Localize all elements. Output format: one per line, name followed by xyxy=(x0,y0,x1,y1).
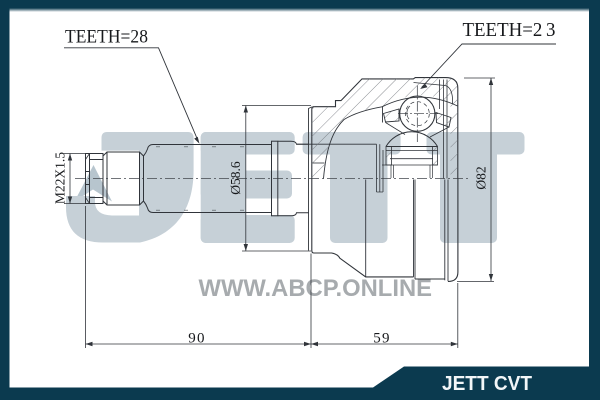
svg-text:TEETH=28: TEETH=28 xyxy=(65,28,148,48)
svg-text:WWW.ABCP.ONLINE: WWW.ABCP.ONLINE xyxy=(199,275,433,302)
svg-text:Ø58.6: Ø58.6 xyxy=(228,161,243,195)
svg-text:59: 59 xyxy=(373,331,390,347)
svg-text:M22X1.5: M22X1.5 xyxy=(53,152,68,204)
svg-text:Ø82: Ø82 xyxy=(474,166,489,189)
svg-text:TEETH=2 3: TEETH=2 3 xyxy=(463,19,556,41)
svg-text:JETT CVT: JETT CVT xyxy=(442,372,532,395)
svg-text:90: 90 xyxy=(188,331,205,347)
